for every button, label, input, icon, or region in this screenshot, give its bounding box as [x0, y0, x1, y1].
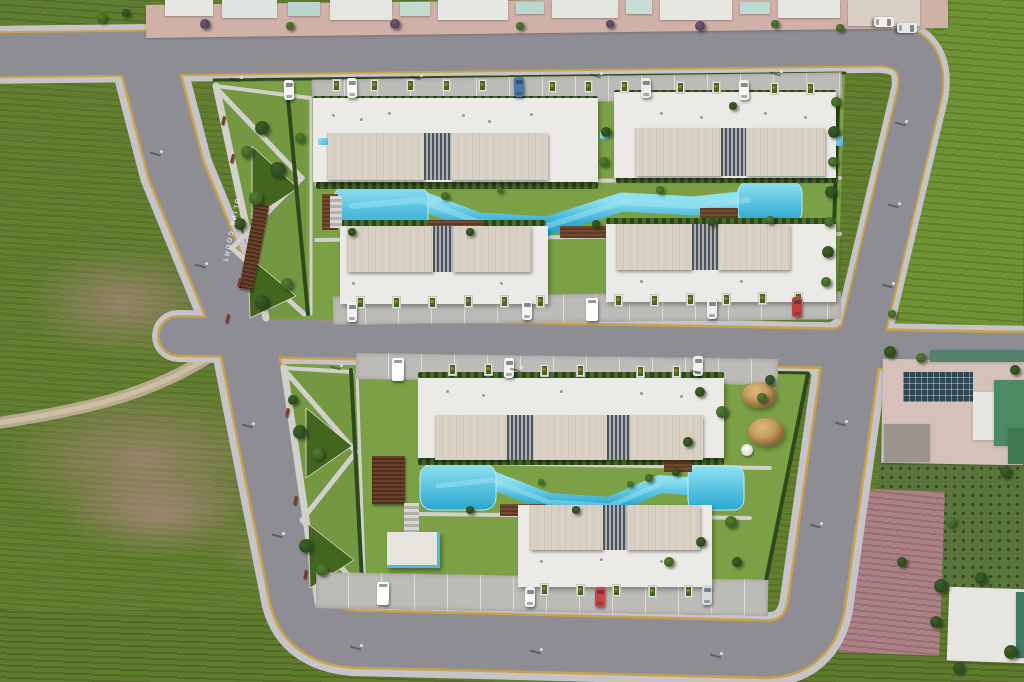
parked-car: [739, 80, 750, 100]
tree: [934, 579, 948, 593]
parked-van: [586, 298, 598, 321]
tree: [316, 564, 328, 576]
tree: [601, 127, 611, 137]
tree: [822, 246, 834, 258]
tree: [729, 102, 737, 110]
terrace-furniture: [462, 114, 465, 117]
tree: [884, 346, 896, 358]
tree: [255, 295, 269, 309]
tree: [312, 448, 324, 460]
terrace-furniture: [660, 560, 663, 563]
villa-roof: [435, 415, 507, 460]
planter-box: [722, 293, 731, 306]
street-lamp: [845, 420, 848, 423]
street-lamp: [720, 652, 723, 655]
pool-house: [387, 532, 440, 568]
street-lamp: [892, 282, 895, 285]
planter-box: [614, 294, 623, 307]
north-building: [778, 0, 840, 18]
villa-roof: [347, 226, 433, 272]
planter-box: [500, 295, 509, 308]
tree: [975, 572, 987, 584]
tree: [97, 13, 107, 23]
tree: [441, 192, 449, 200]
louver-facade: [692, 224, 718, 270]
planter-box: [672, 365, 681, 378]
tree: [466, 228, 474, 236]
tree: [732, 557, 742, 567]
terrace-furniture: [804, 116, 807, 119]
park-bench: [230, 154, 235, 163]
park-bench: [285, 408, 290, 417]
street-lamp: [780, 70, 783, 73]
terrace-furniture: [530, 113, 533, 116]
north-building: [438, 0, 508, 20]
louver-facade: [603, 505, 627, 550]
tree: [606, 20, 614, 28]
planter-box: [686, 293, 695, 306]
terrace-furniture: [388, 112, 391, 115]
tree: [645, 474, 653, 482]
tree: [897, 557, 907, 567]
park-bench: [293, 496, 298, 505]
terrace-mini-pool: [318, 138, 328, 145]
villa-roof: [718, 224, 790, 270]
north-building: [330, 0, 392, 20]
street-lamp: [905, 120, 908, 123]
tree: [831, 97, 841, 107]
tree: [348, 228, 356, 236]
aerial-site-plan-render: OLIVE COURT: [0, 0, 1024, 682]
parked-van: [377, 582, 389, 605]
terrace-furniture: [764, 112, 767, 115]
north-pool: [740, 2, 770, 14]
tree: [295, 133, 305, 143]
neighbor-clutter: [884, 424, 930, 462]
terrace-furniture: [640, 280, 643, 283]
north-pool: [288, 2, 320, 16]
tree: [1000, 466, 1012, 478]
parked-car: [595, 587, 605, 607]
tree: [466, 506, 474, 514]
planter-box: [356, 296, 365, 309]
tree: [683, 437, 693, 447]
tree: [241, 146, 253, 158]
tree: [765, 375, 775, 385]
tree: [953, 662, 965, 674]
villa-roof: [453, 226, 531, 272]
tree: [695, 21, 705, 31]
planter-box: [370, 79, 379, 92]
tree: [293, 425, 307, 439]
planter-box: [428, 296, 437, 309]
street-lamp: [160, 150, 163, 153]
terrace-furniture: [540, 560, 543, 563]
villa-roof: [627, 505, 700, 550]
north-building: [222, 0, 277, 18]
terrace-furniture: [488, 120, 491, 123]
villa-roof: [533, 415, 607, 460]
pool-deck: [700, 208, 738, 218]
villa-roof: [630, 415, 703, 460]
planter-box: [540, 364, 549, 377]
terrace-furniture: [740, 280, 743, 283]
parked-car: [792, 297, 802, 317]
tree: [757, 393, 767, 403]
villa-roof: [635, 128, 721, 176]
park-pergola: [239, 203, 269, 290]
street-lamp: [898, 202, 901, 205]
tree: [672, 468, 680, 476]
terrace-furniture: [660, 112, 663, 115]
terrace-furniture: [482, 394, 485, 397]
planter-box: [576, 364, 585, 377]
planter-box: [684, 585, 693, 598]
tree: [270, 162, 286, 178]
planter-box: [758, 292, 767, 305]
terrace-furniture: [640, 392, 643, 395]
tree: [836, 24, 844, 32]
neighbor-hedge: [930, 350, 1024, 362]
planter-box: [548, 80, 557, 93]
garden-strip: [316, 182, 598, 189]
terrace-furniture: [680, 395, 683, 398]
parked-van: [392, 358, 404, 381]
planter-box: [770, 82, 779, 95]
villa-roof: [746, 128, 825, 176]
tree: [696, 537, 706, 547]
street-lamp: [205, 262, 208, 265]
tree: [821, 277, 831, 287]
solar-panel-roof: [903, 372, 973, 402]
street-lamp: [420, 74, 423, 77]
planter-box: [620, 80, 629, 93]
louver-facade: [424, 133, 451, 180]
planter-box: [464, 295, 473, 308]
villa-roof: [327, 133, 424, 180]
terrace-furniture: [500, 282, 503, 285]
planter-box: [332, 79, 341, 92]
pool-stairs: [330, 196, 342, 228]
planter-box: [712, 81, 721, 94]
parked-car: [514, 77, 525, 97]
planter-box: [540, 583, 549, 596]
louver-facade: [607, 415, 630, 460]
tree: [255, 121, 269, 135]
park-bench: [225, 314, 230, 323]
tree: [695, 387, 705, 397]
north-pool: [516, 2, 544, 14]
planter-box: [636, 365, 645, 378]
tree: [916, 353, 926, 363]
tree: [200, 19, 210, 29]
tree: [390, 19, 400, 29]
north-building: [660, 0, 732, 20]
planter-box: [584, 80, 593, 93]
tree: [592, 220, 600, 228]
park-bench: [303, 570, 308, 579]
tree: [1010, 365, 1020, 375]
street-lamp: [540, 648, 543, 651]
street-lamp: [820, 522, 823, 525]
site-entities: [0, 0, 1024, 682]
tree: [599, 157, 609, 167]
tree: [249, 191, 263, 205]
tree: [930, 616, 942, 628]
tree: [281, 278, 293, 290]
pergola-deck: [372, 456, 405, 504]
parked-car: [522, 300, 532, 320]
north-building: [165, 0, 213, 16]
patio-umbrella: [741, 444, 753, 456]
tree: [825, 186, 837, 198]
street-lamp: [252, 422, 255, 425]
tree: [656, 186, 664, 194]
street-lamp: [520, 366, 523, 369]
parked-car: [897, 23, 917, 33]
tree: [664, 557, 674, 567]
tree: [516, 22, 524, 30]
planter-box: [392, 296, 401, 309]
planter-box: [806, 82, 815, 95]
street-lamp: [240, 76, 243, 79]
tree: [122, 9, 130, 17]
tree: [771, 20, 779, 28]
parked-car: [641, 78, 652, 98]
tree: [286, 22, 294, 30]
terrace-furniture: [560, 390, 563, 393]
street-lamp: [600, 72, 603, 75]
planter-box: [648, 585, 657, 598]
tree: [1004, 645, 1018, 659]
terrace-furniture: [600, 558, 603, 561]
terrace-furniture: [352, 282, 355, 285]
tree: [572, 506, 580, 514]
tree: [299, 539, 313, 553]
planter-box: [650, 294, 659, 307]
planter-box: [576, 584, 585, 597]
tree: [288, 395, 298, 405]
tree: [725, 516, 737, 528]
street-lamp: [700, 368, 703, 371]
planter-box: [676, 81, 685, 94]
terrace-mini-pool: [836, 136, 843, 146]
parked-car: [702, 585, 712, 605]
planter-box: [442, 79, 451, 92]
tree: [497, 187, 503, 193]
planter-box: [406, 79, 415, 92]
parked-car: [347, 78, 358, 98]
villa-roof: [451, 133, 548, 180]
louver-facade: [721, 128, 746, 176]
tree: [828, 157, 838, 167]
tree: [716, 406, 728, 418]
terrace-furniture: [332, 114, 335, 117]
villa-roof: [616, 224, 692, 270]
tree: [538, 479, 544, 485]
parked-car: [347, 302, 357, 322]
tree: [828, 126, 840, 138]
sand-mound: [748, 418, 784, 446]
louver-facade: [507, 415, 533, 460]
louver-facade: [433, 226, 453, 272]
tree: [766, 216, 774, 224]
tree: [824, 217, 834, 227]
north-building: [552, 0, 618, 18]
tree: [627, 481, 633, 487]
street-lamp: [360, 644, 363, 647]
park-bench: [221, 116, 226, 125]
terrace-furniture: [700, 116, 703, 119]
planter-box: [478, 79, 487, 92]
parked-car: [525, 587, 535, 607]
street-lamp: [282, 532, 285, 535]
street-lamp: [340, 364, 343, 367]
terrace-furniture: [446, 390, 449, 393]
planter-box: [612, 584, 621, 597]
tree: [946, 517, 956, 527]
planter-box: [536, 295, 545, 308]
parked-car: [874, 17, 894, 27]
neighbor-green-roof: [1008, 428, 1024, 464]
north-pool: [400, 2, 430, 16]
terrace-furniture: [360, 118, 363, 121]
tree: [708, 218, 716, 226]
parked-car: [707, 299, 717, 319]
planter-box: [448, 363, 457, 376]
villa-roof: [530, 505, 603, 550]
north-pool: [626, 0, 652, 14]
tree: [888, 310, 896, 318]
parked-car: [284, 80, 295, 100]
planter-box: [484, 363, 493, 376]
